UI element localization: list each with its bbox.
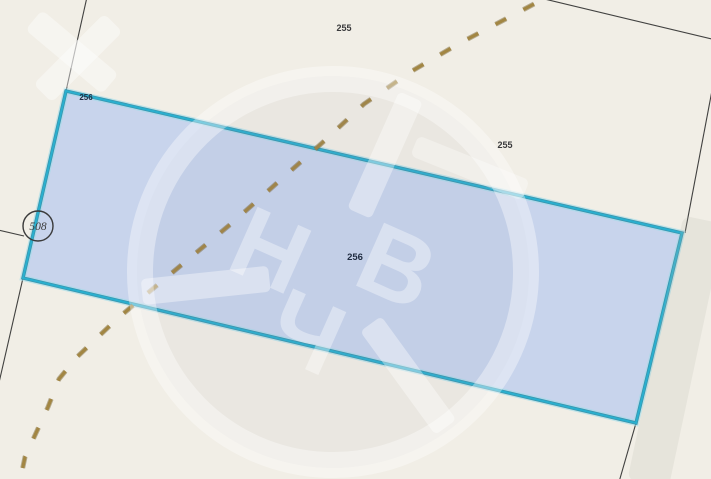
parcel-label-right: 255 — [497, 140, 512, 150]
selected-parcel-corner-label: 256 — [79, 93, 93, 102]
parcel-label-top: 255 — [336, 23, 351, 33]
map-viewport[interactable]: Н В Ч 255 255 256 256 508 — [0, 0, 711, 479]
map-canvas[interactable]: Н В Ч 255 255 256 256 508 — [0, 0, 711, 479]
selected-parcel-label: 256 — [347, 252, 363, 263]
quarter-marker-number: 508 — [29, 221, 47, 233]
